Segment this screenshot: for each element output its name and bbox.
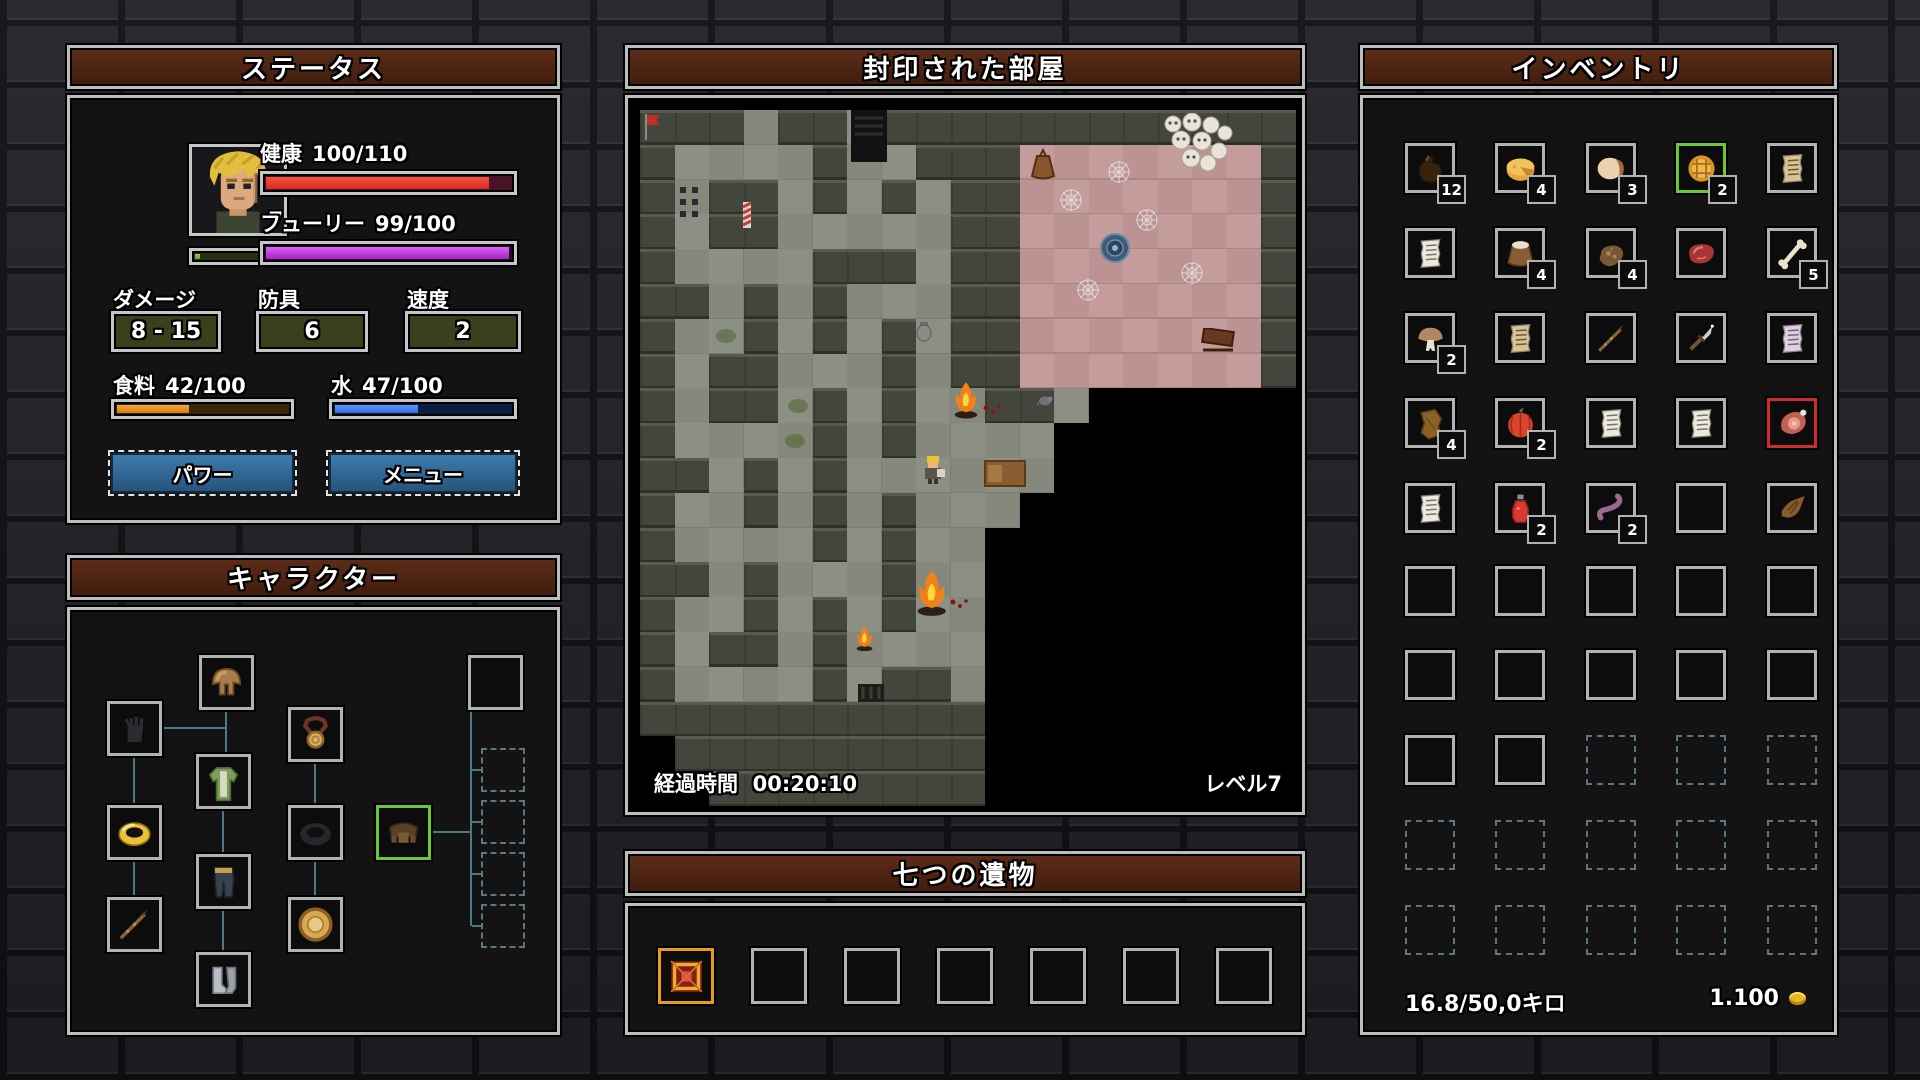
skull-pile-icon — [1161, 113, 1235, 175]
inventory-panel-header: インベントリ — [1360, 45, 1837, 89]
map-tile-floor — [709, 284, 744, 319]
inventory-slot-empty[interactable] — [1495, 650, 1545, 700]
map-tile-floor — [778, 528, 813, 563]
map-tile-floor — [951, 667, 986, 702]
map-tile-dark — [1054, 771, 1089, 806]
map-tile-dark — [1054, 562, 1089, 597]
map-tile-wall — [640, 284, 675, 319]
map-tile-wall — [709, 388, 744, 423]
map-tile-wall — [951, 319, 986, 354]
map-tile-dark — [1192, 702, 1227, 737]
map-tile-dark — [1020, 597, 1055, 632]
map-tile-wall — [951, 249, 986, 284]
relic-slot-empty[interactable] — [1123, 948, 1179, 1004]
map-tile-wall — [744, 388, 779, 423]
map-tile-floor — [675, 667, 710, 702]
map-tile-floor — [847, 180, 882, 215]
map-sprite-dots — [678, 185, 702, 223]
water-label: 水47/100 — [331, 370, 443, 400]
map-tile-wall — [1261, 145, 1296, 180]
buckler-icon — [295, 904, 336, 945]
map-tile-floor — [847, 388, 882, 423]
map-tile-dark — [1261, 388, 1296, 423]
inventory-slot-empty[interactable] — [1405, 735, 1455, 785]
map-tile-wall — [985, 214, 1020, 249]
fury-label: フューリー99/100 — [260, 208, 456, 238]
map-tile-dark — [640, 736, 675, 771]
map-tile-dark — [1123, 667, 1158, 702]
map-tile-wall — [985, 284, 1020, 319]
map-tile-wall — [744, 284, 779, 319]
inventory-slot-driedmeat[interactable]: 4 — [1586, 228, 1636, 278]
map-sprite-sack — [1028, 148, 1058, 186]
map-tile-wall — [1261, 110, 1296, 145]
inventory-slot-scroll-tan[interactable] — [1767, 143, 1817, 193]
map-tile-floor — [951, 528, 986, 563]
inventory-slot-sack[interactable]: 4 — [1495, 228, 1545, 278]
inventory-slot-scroll-white[interactable] — [1676, 398, 1726, 448]
scroll-white-icon — [1412, 490, 1449, 527]
map-tile-dark — [1089, 632, 1124, 667]
inventory-slot-empty[interactable] — [1495, 735, 1545, 785]
map-sprite-skulls — [1161, 113, 1235, 179]
inventory-panel-title: インベントリ — [1511, 49, 1685, 86]
map-sprite-grate — [858, 684, 884, 706]
map-tile-wood — [1123, 284, 1158, 319]
map-tile-floor — [675, 632, 710, 667]
map-tile-wall — [675, 702, 710, 737]
map-tile-wood — [1192, 214, 1227, 249]
game-screen: ステータス 7 健康100/110 — [0, 0, 1920, 1080]
flag-icon — [643, 112, 663, 142]
map-tile-dark — [1054, 632, 1089, 667]
map-sprite-moss — [716, 329, 736, 343]
map-tile-wall — [640, 388, 675, 423]
inventory-slot-ham[interactable] — [1767, 398, 1817, 448]
menu-button[interactable]: メニュー — [329, 453, 517, 493]
map-tile-wall — [985, 354, 1020, 389]
map-tile-dark — [1227, 667, 1262, 702]
map-tile-dark — [1192, 423, 1227, 458]
equipment-slot-locked — [481, 904, 525, 948]
inventory-slot-empty[interactable] — [1767, 566, 1817, 616]
map-tile-floor — [778, 180, 813, 215]
map-tile-wall — [882, 249, 917, 284]
inventory-slot-locked — [1767, 735, 1817, 785]
map-tile-wall — [709, 110, 744, 145]
map-tile-wall — [916, 736, 951, 771]
map-tile-wall — [847, 249, 882, 284]
map-tile-wall — [1261, 180, 1296, 215]
equipment-slot-amulet[interactable] — [288, 707, 343, 762]
map-tile-floor — [847, 493, 882, 528]
map-tile-wall — [951, 145, 986, 180]
map-sprite-web — [1106, 159, 1132, 189]
armor-label: 防具 — [258, 284, 300, 314]
map-tile-wall — [882, 354, 917, 389]
map-tile-wall — [985, 180, 1020, 215]
inventory-slot-potion[interactable]: 2 — [1495, 483, 1545, 533]
inventory-slot-empty[interactable] — [1405, 566, 1455, 616]
map-tile-dark — [1089, 702, 1124, 737]
inventory-slot-scroll-white[interactable] — [1586, 398, 1636, 448]
inventory-slot-locked — [1586, 735, 1636, 785]
relic-slot-relic[interactable] — [658, 948, 714, 1004]
urn-icon — [916, 322, 932, 342]
inventory-slot-empty[interactable] — [1405, 650, 1455, 700]
map-tile-dark — [1158, 771, 1193, 806]
item-count-badge: 4 — [1437, 430, 1466, 459]
map-tile-floor — [675, 528, 710, 563]
inventory-slot-empty[interactable] — [1495, 566, 1545, 616]
moss-icon — [785, 434, 805, 448]
weight-indicator: 16.8/50,0キロ — [1405, 986, 1566, 1018]
map-tile-dark — [1089, 736, 1124, 771]
map-tile-floor — [709, 562, 744, 597]
map-tile-wall — [778, 736, 813, 771]
inventory-slot-locked — [1495, 820, 1545, 870]
inventory-slot-scroll-white[interactable] — [1405, 228, 1455, 278]
hood-icon — [206, 662, 247, 703]
spear-icon — [114, 904, 155, 945]
map-tile-wall — [813, 319, 848, 354]
map-tile-wall — [882, 771, 917, 806]
map-tile-wall — [882, 736, 917, 771]
map-tile-wall — [813, 458, 848, 493]
item-count-badge: 2 — [1708, 175, 1737, 204]
item-count-badge: 12 — [1437, 175, 1466, 204]
equipment-slot-pants[interactable] — [196, 854, 251, 909]
map-tile-wall — [709, 702, 744, 737]
fury-bar — [260, 241, 517, 265]
inventory-slot-paw[interactable] — [1767, 483, 1817, 533]
map-tile-floor — [778, 597, 813, 632]
inventory-slot-waterskin[interactable]: 12 — [1405, 143, 1455, 193]
map-tile-floor — [675, 597, 710, 632]
map-tile-floor — [951, 493, 986, 528]
map-tile-dark — [1192, 493, 1227, 528]
map-tile-dark — [1089, 493, 1124, 528]
map-tile-floor — [778, 667, 813, 702]
map-tile-floor — [847, 458, 882, 493]
equipment-layout — [70, 610, 563, 1038]
map-tile-wall — [1261, 249, 1296, 284]
inventory-panel: 1243244524222 16.8/50,0キロ 1.100 — [1360, 95, 1837, 1035]
map-tile-dark — [1089, 771, 1124, 806]
damage-value: 8 - 15 — [111, 311, 221, 352]
map-tile-dark — [1227, 702, 1262, 737]
map-tile-floor — [675, 388, 710, 423]
equipment-slot-ring-gold[interactable] — [107, 805, 162, 860]
inventory-slot-scroll-tan[interactable] — [1495, 313, 1545, 363]
map-tile-wood — [1192, 180, 1227, 215]
relic-slot-empty[interactable] — [937, 948, 993, 1004]
relics-panel-header: 七つの遺物 — [625, 851, 1305, 896]
spiderweb-icon — [1134, 207, 1160, 233]
map-tile-dark — [985, 562, 1020, 597]
map-tile-floor — [916, 214, 951, 249]
equipment-slot-empty[interactable] — [468, 655, 523, 710]
inventory-slot-locked — [1495, 905, 1545, 955]
map-tile-wall — [847, 736, 882, 771]
map-tile-wood — [1089, 319, 1124, 354]
map-tile-dark — [1123, 597, 1158, 632]
map-tile-wall — [744, 319, 779, 354]
steak-icon — [1683, 235, 1720, 272]
equipment-slot-spear[interactable] — [107, 897, 162, 952]
map-tile-dark — [1261, 458, 1296, 493]
map-tile-dark — [1261, 632, 1296, 667]
equipment-slot-hood[interactable] — [199, 655, 254, 710]
map-tile-floor — [778, 284, 813, 319]
blood-icon — [949, 596, 971, 610]
map-tile-floor — [916, 423, 951, 458]
grate-icon — [858, 684, 884, 702]
inventory-slot-empty[interactable] — [1676, 650, 1726, 700]
map-sprite-fire — [913, 569, 951, 620]
map-sprite-moss — [785, 434, 805, 448]
map-tile-floor — [744, 667, 779, 702]
map-tile-wall — [1261, 354, 1296, 389]
map-tile-wall — [778, 110, 813, 145]
map-tile-dark — [1227, 458, 1262, 493]
map-tile-floor — [847, 284, 882, 319]
map-tile-dark — [1054, 458, 1089, 493]
map-tile-wall — [1123, 110, 1158, 145]
map-tile-wood — [1054, 145, 1089, 180]
map-tile-wall — [916, 771, 951, 806]
equipment-slot-belt[interactable] — [376, 805, 431, 860]
equipment-slot-locked — [481, 852, 525, 896]
health-label: 健康100/110 — [260, 138, 407, 168]
map-tile-wall — [1054, 110, 1089, 145]
map-tile-wall — [640, 597, 675, 632]
map-tile-wood — [1158, 354, 1193, 389]
map-tile-wood — [1020, 319, 1055, 354]
map-tile-wall — [882, 319, 917, 354]
equipment-connector — [470, 710, 472, 926]
relics-panel — [625, 903, 1305, 1035]
power-button[interactable]: パワー — [111, 453, 294, 493]
inventory-slot-leather[interactable]: 4 — [1405, 398, 1455, 448]
inventory-slot-locked — [1767, 905, 1817, 955]
relic-slot-empty[interactable] — [844, 948, 900, 1004]
inventory-slot-worm[interactable]: 2 — [1586, 483, 1636, 533]
spiderweb-icon — [1179, 260, 1205, 286]
map-tile-dark — [1054, 736, 1089, 771]
map-tile-wall — [951, 771, 986, 806]
map-tile-floor — [847, 214, 882, 249]
map-tile-wall — [709, 354, 744, 389]
map-tile-wood — [1227, 180, 1262, 215]
glove-empty-icon — [114, 708, 155, 749]
map-tile-wall — [813, 702, 848, 737]
map-tile-wood — [1054, 214, 1089, 249]
map-panel-title: 封印された部屋 — [863, 49, 1066, 86]
map-tile-dark — [1158, 702, 1193, 737]
relic-slot-empty[interactable] — [1030, 948, 1086, 1004]
map-tile-dark — [1020, 667, 1055, 702]
item-count-badge: 5 — [1799, 260, 1828, 289]
map-sprite-moss — [788, 399, 808, 413]
speed-label: 速度 — [407, 284, 449, 314]
map-tile-floor — [778, 493, 813, 528]
striped-pole-icon — [740, 200, 754, 230]
inventory-slot-steak[interactable] — [1676, 228, 1726, 278]
map-tile-wall — [951, 702, 986, 737]
map-tile-wall — [882, 110, 917, 145]
map-tile-floor — [778, 319, 813, 354]
inventory-slot-pumpkin[interactable]: 2 — [1495, 398, 1545, 448]
equipment-slot-glove-empty[interactable] — [107, 701, 162, 756]
dungeon-map-viewport[interactable]: 経過時間 00:20:10 レベル7 — [640, 110, 1296, 806]
map-tile-wall — [744, 354, 779, 389]
map-tile-floor — [744, 423, 779, 458]
map-sprite-rat — [1037, 392, 1057, 411]
relic-slot-empty[interactable] — [1216, 948, 1272, 1004]
map-panel: 経過時間 00:20:10 レベル7 — [625, 95, 1305, 815]
map-tile-dark — [985, 667, 1020, 702]
inventory-slot-spear[interactable] — [1586, 313, 1636, 363]
map-tile-wall — [985, 110, 1020, 145]
inventory-slot-dagger[interactable] — [1676, 313, 1726, 363]
map-tile-wall — [744, 597, 779, 632]
map-tile-dark — [1123, 632, 1158, 667]
inventory-slot-scroll-lavender[interactable] — [1767, 313, 1817, 363]
map-tile-floor — [951, 632, 986, 667]
gold-coin-icon — [1789, 992, 1806, 1005]
map-tile-dark — [1158, 388, 1193, 423]
map-tile-dark — [1227, 562, 1262, 597]
food-bar-fill — [117, 405, 189, 413]
map-tile-wall — [813, 667, 848, 702]
map-tile-dark — [1054, 493, 1089, 528]
emblem-icon — [1099, 232, 1131, 264]
spear-icon — [1593, 320, 1630, 357]
equipment-connector — [162, 727, 225, 729]
map-tile-floor — [778, 249, 813, 284]
map-tile-floor — [778, 562, 813, 597]
item-count-badge: 4 — [1527, 260, 1556, 289]
boots-icon — [203, 959, 244, 1000]
relic-slot-empty[interactable] — [751, 948, 807, 1004]
inventory-slot-empty[interactable] — [1767, 650, 1817, 700]
map-tile-wall — [813, 597, 848, 632]
equipment-slot-buckler[interactable] — [288, 897, 343, 952]
equipment-slot-tunic[interactable] — [196, 754, 251, 809]
map-tile-wall — [985, 145, 1020, 180]
map-tile-wood — [1123, 354, 1158, 389]
map-tile-floor — [916, 528, 951, 563]
map-tile-wall — [882, 562, 917, 597]
map-tile-dark — [1158, 736, 1193, 771]
inventory-slot-bone[interactable]: 5 — [1767, 228, 1817, 278]
map-tile-dark — [1227, 528, 1262, 563]
map-tile-wall — [1261, 284, 1296, 319]
map-tile-floor — [916, 354, 951, 389]
inventory-slot-mushroom[interactable]: 2 — [1405, 313, 1455, 363]
map-tile-wood — [1227, 354, 1262, 389]
equipment-slot-ring-empty[interactable] — [288, 805, 343, 860]
item-count-badge: 2 — [1618, 515, 1647, 544]
inventory-slot-scroll-white[interactable] — [1405, 483, 1455, 533]
map-tile-dark — [1261, 528, 1296, 563]
character-panel — [67, 607, 560, 1035]
map-tile-wood — [1089, 354, 1124, 389]
inventory-slot-empty[interactable] — [1676, 483, 1726, 533]
inventory-slot-empty[interactable] — [1676, 566, 1726, 616]
map-tile-floor — [709, 528, 744, 563]
inventory-slot-pie[interactable]: 2 — [1676, 143, 1726, 193]
map-tile-floor — [882, 632, 917, 667]
item-count-badge: 3 — [1618, 175, 1647, 204]
pants-icon — [203, 861, 244, 902]
map-tile-dark — [1089, 667, 1124, 702]
map-tile-dark — [1089, 423, 1124, 458]
map-tile-dark — [1227, 388, 1262, 423]
map-tile-wall — [882, 423, 917, 458]
map-tile-floor — [709, 249, 744, 284]
equipment-connector — [225, 710, 227, 754]
item-count-badge: 4 — [1527, 175, 1556, 204]
inventory-slot-locked — [1405, 905, 1455, 955]
map-tile-dark — [1020, 771, 1055, 806]
map-tile-wall — [640, 667, 675, 702]
relic-slots — [628, 906, 1308, 1038]
fire-icon — [854, 625, 875, 651]
map-tile-floor — [744, 528, 779, 563]
inventory-slot-locked — [1676, 735, 1726, 785]
fire-icon — [951, 381, 981, 419]
map-tile-dark — [1054, 423, 1089, 458]
map-sprite-blood — [982, 401, 1004, 420]
damage-label: ダメージ — [113, 284, 196, 314]
map-tile-dark — [1227, 423, 1262, 458]
map-tile-dark — [1158, 458, 1193, 493]
spiderweb-icon — [1058, 187, 1084, 213]
inventory-slot-bread[interactable]: 3 — [1586, 143, 1636, 193]
map-tile-dark — [1227, 736, 1262, 771]
map-tile-floor — [675, 319, 710, 354]
equipment-slot-boots[interactable] — [196, 952, 251, 1007]
map-tile-wall — [675, 458, 710, 493]
inventory-slot-cheese[interactable]: 4 — [1495, 143, 1545, 193]
relic-icon — [666, 956, 707, 997]
water-bar — [329, 399, 517, 419]
belt-icon — [383, 812, 424, 853]
character-panel-header: キャラクター — [67, 555, 560, 600]
paw-icon — [1774, 490, 1811, 527]
map-tile-dark — [985, 528, 1020, 563]
fury-bar-fill — [266, 247, 509, 259]
map-tile-dark — [1054, 702, 1089, 737]
map-tile-floor — [1054, 388, 1089, 423]
map-tile-floor — [882, 145, 917, 180]
map-tile-wall — [985, 319, 1020, 354]
map-tile-dark — [1158, 423, 1193, 458]
map-sprite-web — [1075, 277, 1101, 307]
map-tile-dark — [1123, 388, 1158, 423]
sack-icon — [1028, 148, 1058, 182]
inventory-slot-empty[interactable] — [1586, 650, 1636, 700]
map-tile-dark — [1123, 423, 1158, 458]
inventory-slot-empty[interactable] — [1586, 566, 1636, 616]
map-tile-floor — [847, 319, 882, 354]
map-tile-floor — [744, 110, 779, 145]
map-tile-floor — [675, 493, 710, 528]
map-tile-floor — [985, 493, 1020, 528]
scroll-white-icon — [1683, 405, 1720, 442]
